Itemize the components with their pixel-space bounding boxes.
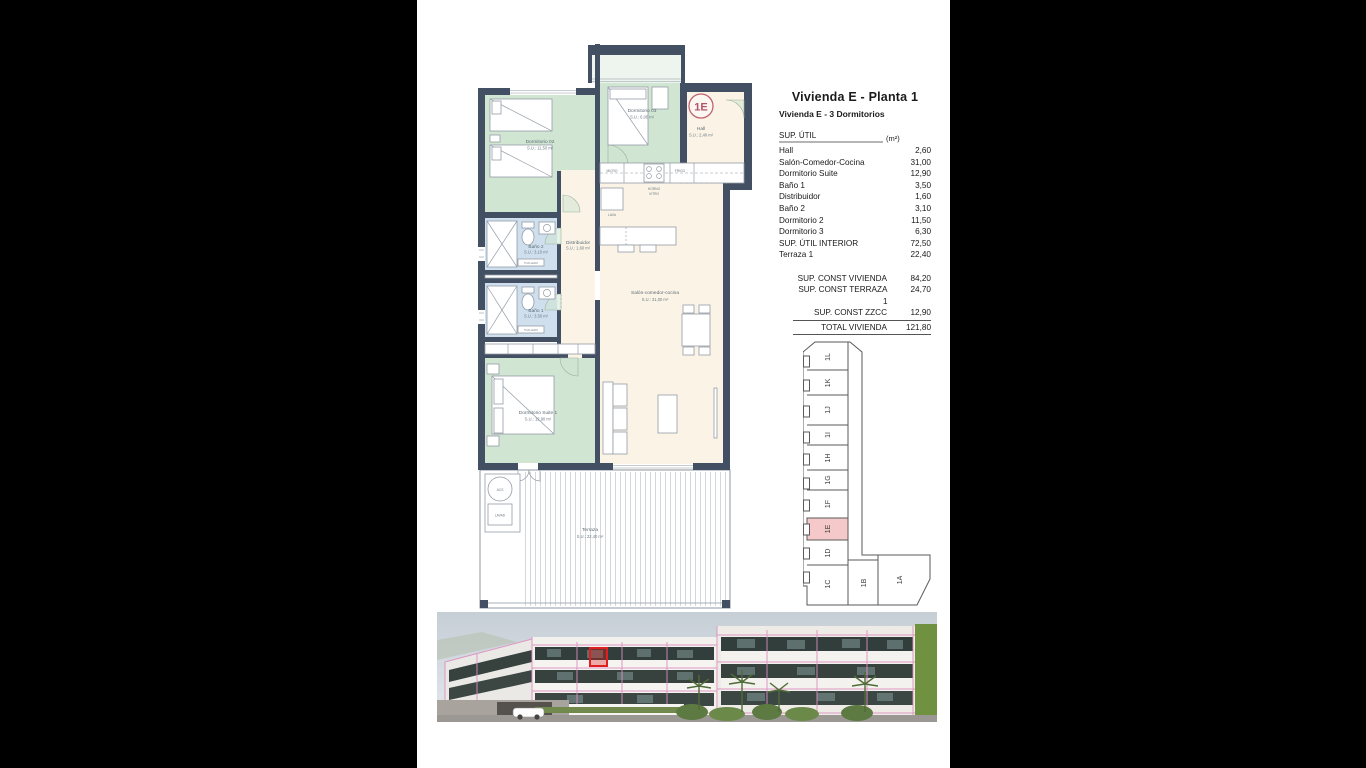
row-label: Dormitorio Suite — [779, 168, 838, 180]
summary-label: SUP. CONST TERRAZA 1 — [793, 284, 888, 307]
label-horno: HORNO — [648, 187, 661, 191]
keyplan-unit: 1B — [861, 578, 868, 587]
table-row: Dormitorio 36,30 — [779, 226, 931, 238]
keyplan-unit: 1L — [825, 353, 832, 361]
area-summary: SUP. CONST VIVIENDA84,20 SUP. CONST TERR… — [793, 273, 931, 335]
label-toallero-1: TOALLERO — [524, 328, 538, 332]
summary-label: SUP. CONST ZZCC — [814, 307, 887, 318]
room-area-bano2: S.U.: 3,10 m² — [524, 250, 549, 255]
row-value: 11,50 — [911, 215, 931, 227]
row-value: 2,60 — [915, 145, 931, 157]
keyplan-unit: 1J — [825, 406, 832, 413]
table-row: Baño 13,50 — [779, 180, 931, 192]
total-value: 121,80 — [887, 322, 931, 333]
total-label: TOTAL VIVIENDA — [821, 322, 887, 333]
building-render — [437, 612, 937, 722]
room-label-hall: Hall — [697, 126, 705, 132]
label-lavad: LAVAD — [495, 514, 506, 518]
key-plan: 1L 1K 1J 1I 1H 1G 1F 1E 1D 1C 1B 1A — [803, 338, 933, 608]
row-label: Dormitorio 3 — [779, 226, 824, 238]
summary-value: 24,70 — [888, 284, 932, 307]
keyplan-unit: 1I — [825, 432, 832, 438]
room-area-bano1: S.U.: 3,50 m² — [524, 314, 549, 319]
unit-badge-label: 1E — [694, 102, 707, 114]
row-label: Terraza 1 — [779, 249, 813, 261]
room-label-suite: Dormitorio Suite 1 — [519, 410, 558, 416]
row-value: 31,00 — [911, 157, 932, 169]
summary-label: SUP. CONST VIVIENDA — [798, 273, 887, 284]
room-area-suite: S.U.: 12,90 m² — [525, 417, 552, 422]
summary-value: 84,20 — [887, 273, 931, 284]
room-area-terraza: S.U.: 22,40 m² — [577, 534, 604, 539]
keyplan-unit: 1F — [825, 500, 832, 508]
label-frigo: FRIGO — [675, 169, 686, 173]
room-label-terraza: Terraza — [582, 527, 598, 533]
label-micro: MICRO — [607, 169, 618, 173]
row-value: 1,60 — [915, 191, 931, 203]
row-value: 22,40 — [911, 249, 932, 261]
table-row: Baño 23,10 — [779, 203, 931, 215]
row-value: 3,50 — [915, 180, 931, 192]
keyplan-unit: 1K — [825, 378, 832, 387]
floor-plan: 1E Dormitorio 02 S.U.: 11,50 m² Dormitor… — [478, 42, 763, 612]
area-table-header-label: SUP. ÚTIL — [779, 131, 883, 143]
summary-value: 12,90 — [887, 307, 931, 318]
green-field — [915, 624, 937, 715]
keyplan-unit-highlighted: 1E — [825, 524, 832, 533]
room-area-dormitorio02: S.U.: 11,50 m² — [527, 146, 554, 151]
room-area-salon: S.U.: 31,00 m² — [642, 297, 669, 302]
summary-row: SUP. CONST TERRAZA 124,70 — [793, 284, 931, 307]
row-label: Salón-Comedor-Cocina — [779, 157, 865, 169]
row-label: Dormitorio 2 — [779, 215, 824, 227]
page-subtitle: Vivienda E - 3 Dormitorios — [779, 109, 931, 119]
label-toallero-2: TOALLERO — [524, 261, 538, 265]
label-acs: ACS — [497, 488, 505, 492]
room-area-distribuidor: S.U.: 1,60 m² — [566, 246, 591, 251]
table-row: SUP. ÚTIL INTERIOR72,50 — [779, 238, 931, 250]
keyplan-unit: 1D — [825, 549, 832, 558]
highlighted-unit-marker — [590, 648, 607, 666]
row-label: SUP. ÚTIL INTERIOR — [779, 238, 858, 250]
row-label: Baño 2 — [779, 203, 805, 215]
room-label-dormitorio03: Dormitorio 03 — [628, 108, 657, 114]
table-row: Hall2,60 — [779, 145, 931, 157]
table-row: Dormitorio 211,50 — [779, 215, 931, 227]
area-table: Hall2,60 Salón-Comedor-Cocina31,00 Dormi… — [779, 145, 931, 261]
keyplan-unit: 1A — [897, 575, 904, 584]
plan-sheet: 1E Dormitorio 02 S.U.: 11,50 m² Dormitor… — [417, 0, 950, 768]
row-label: Distribuidor — [779, 191, 820, 203]
keyplan-unit: 1G — [825, 475, 832, 484]
unit-badge: 1E — [689, 94, 713, 118]
room-area-hall: S.U.: 2,40 m² — [689, 133, 714, 138]
keyplan-unit: 1H — [825, 454, 832, 463]
area-info-panel: Vivienda E - Planta 1 Vivienda E - 3 Dor… — [779, 90, 931, 335]
row-value: 6,30 — [915, 226, 931, 238]
table-row: Dormitorio Suite12,90 — [779, 168, 931, 180]
table-row: Salón-Comedor-Cocina31,00 — [779, 157, 931, 169]
keyplan-unit: 1C — [825, 580, 832, 589]
row-value: 3,10 — [915, 203, 931, 215]
room-label-dormitorio02: Dormitorio 02 — [526, 139, 555, 145]
label-lava: LAVA — [608, 213, 617, 217]
page-title: Vivienda E - Planta 1 — [779, 90, 931, 104]
row-value: 12,90 — [911, 168, 932, 180]
area-table-header: SUP. ÚTIL (m²) — [779, 131, 931, 143]
total-row: TOTAL VIVIENDA121,80 — [793, 320, 931, 335]
area-table-header-unit: (m²) — [886, 134, 900, 143]
summary-row: SUP. CONST ZZCC12,90 — [793, 307, 931, 318]
room-area-dormitorio03: S.U.: 6,00 m² — [630, 115, 655, 120]
table-row: Terraza 122,40 — [779, 249, 931, 261]
table-row: Distribuidor1,60 — [779, 191, 931, 203]
row-value: 72,50 — [911, 238, 932, 250]
screenshot-stage: 1E Dormitorio 02 S.U.: 11,50 m² Dormitor… — [0, 0, 1366, 768]
row-label: Hall — [779, 145, 793, 157]
row-label: Baño 1 — [779, 180, 805, 192]
summary-row: SUP. CONST VIVIENDA84,20 — [793, 273, 931, 284]
room-label-salon: Salón-comedor-cocina — [631, 290, 679, 296]
label-vitro: VITRO — [649, 192, 660, 196]
